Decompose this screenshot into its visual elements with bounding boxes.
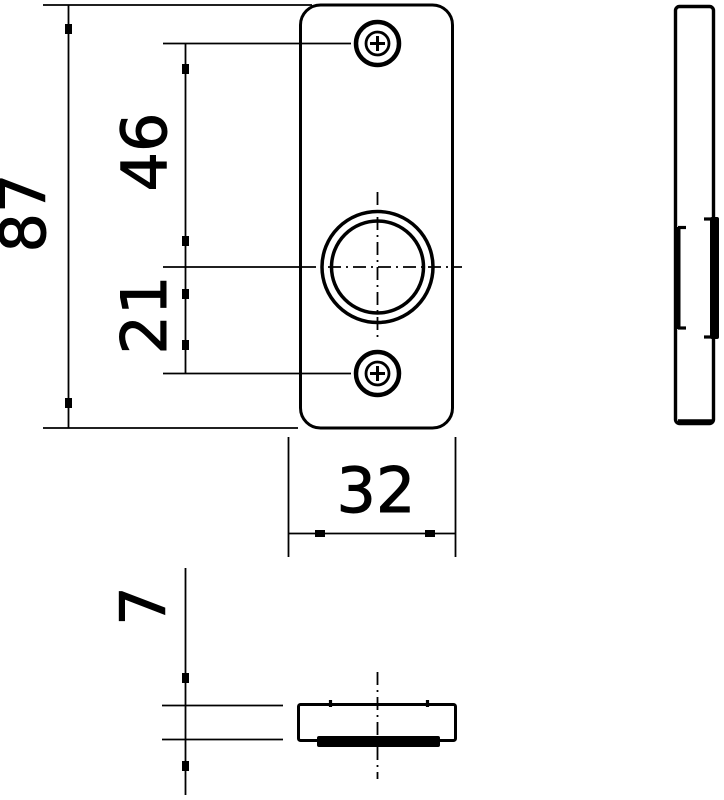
dimension-terminator [315,530,325,537]
dimension-terminator [425,530,435,537]
dimension-value-87: 87 [0,174,60,253]
dimension-terminator [182,236,189,246]
dimension-terminator [65,398,72,408]
dimension-value-32: 32 [337,454,416,527]
dimension-value-46: 46 [108,113,181,192]
dimension-value-7: 7 [107,586,180,625]
collar-protrusion [710,217,719,339]
dimension-terminator [182,64,189,74]
dimension-terminator [182,761,189,771]
technical-drawing-page: 87 46 21 32 [0,0,724,800]
dimension-value-21: 21 [108,276,181,355]
dimension-terminator [182,289,189,299]
collar-protrusion [317,736,440,747]
dimension-terminator [182,340,189,350]
rosette-dimension-drawing: 87 46 21 32 [0,0,724,800]
dimension-terminator [182,673,189,683]
dimension-terminator [65,24,72,34]
